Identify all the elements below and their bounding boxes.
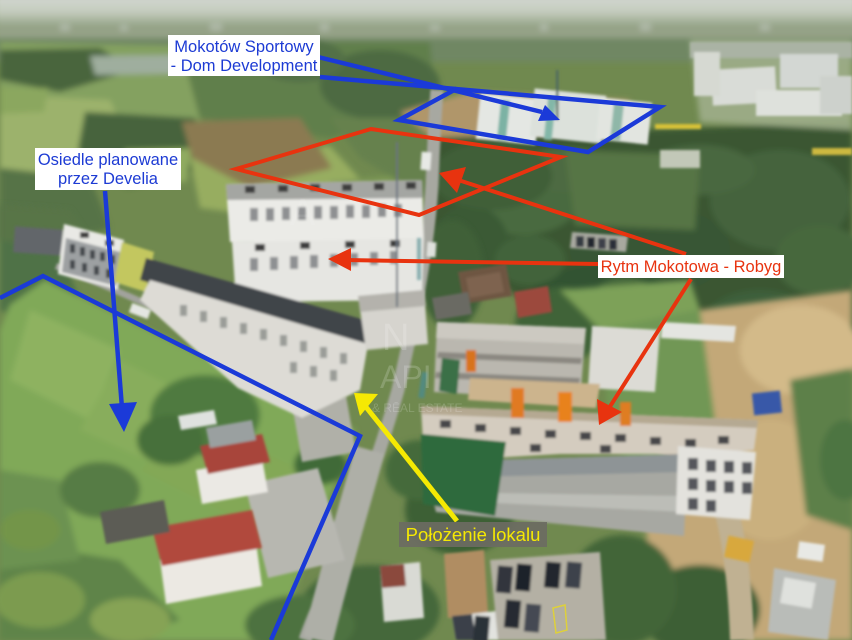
- svg-text:Osiedle planowane: Osiedle planowane: [38, 151, 178, 169]
- svg-text:API: API: [380, 359, 432, 395]
- svg-text:Położenie lokalu: Położenie lokalu: [406, 524, 541, 545]
- svg-text:Rytm Mokotowa - Robyg: Rytm Mokotowa - Robyg: [601, 258, 782, 276]
- svg-text:N: N: [382, 317, 409, 359]
- svg-text:& RĒAL ESTATE: & RĒAL ESTATE: [372, 401, 462, 415]
- svg-text:przez Develia: przez Develia: [58, 170, 159, 188]
- svg-text:- Dom Development: - Dom Development: [171, 57, 318, 75]
- svg-text:Mokotów Sportowy: Mokotów Sportowy: [174, 38, 314, 56]
- svg-text:A: A: [290, 192, 316, 234]
